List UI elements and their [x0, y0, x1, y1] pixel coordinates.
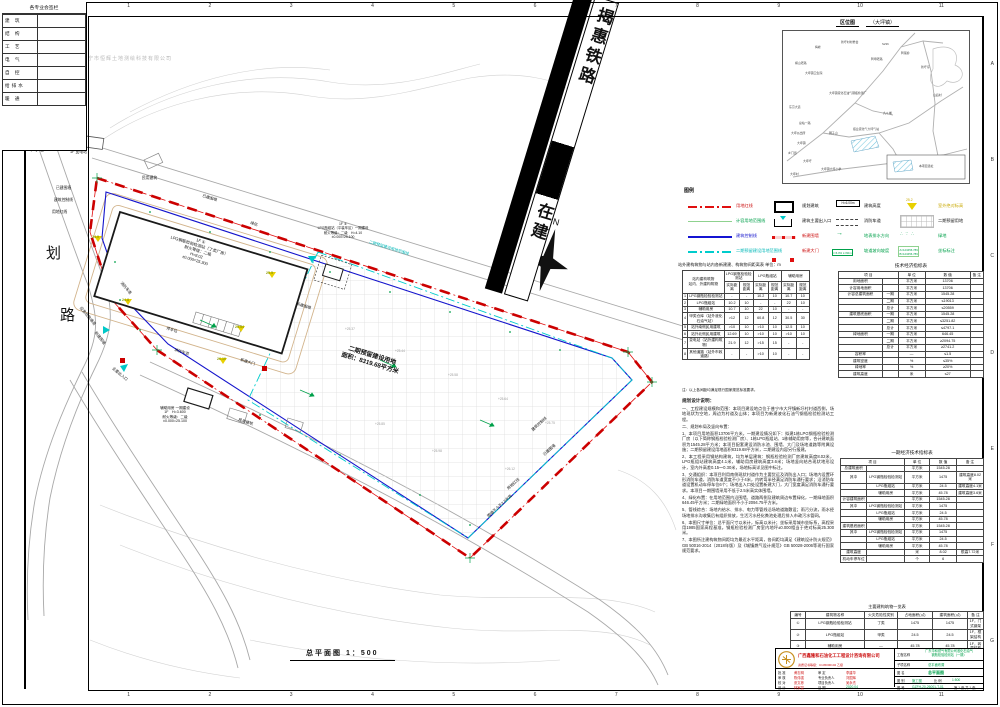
grid-ref-number: 6 [534, 3, 537, 9]
table-cell: % [898, 364, 925, 371]
new-wall-swatch [772, 236, 796, 239]
table-cell [841, 543, 867, 550]
table-cell: >10 [753, 331, 768, 338]
map-place-label: 山后村 [933, 93, 942, 97]
table-cell: 1545.28 [930, 523, 957, 530]
table-cell: 10 [768, 293, 781, 300]
table-row: 6站外北侧民用建筑12.6910>1010>1010 [683, 331, 810, 338]
table-cell [867, 556, 905, 563]
table-row: 计容用地面积平方米13706 [839, 285, 984, 292]
table-cell [970, 331, 983, 338]
grid-ref-number: 11 [939, 692, 944, 698]
table-cell: - [796, 349, 809, 360]
table-cell: 平方米 [905, 529, 930, 536]
table-row: LPG瓶组站平方米24.5建筑高度4.1米 [841, 483, 984, 490]
table-row: 辅助用房平方米45.78 [841, 516, 984, 523]
table-cell: 1475 [898, 618, 933, 629]
grid-ref-number: 9 [777, 3, 780, 9]
table-cell: 平方米 [905, 523, 930, 530]
table-cell: 个 [905, 556, 930, 563]
table-cell: - [781, 349, 796, 360]
table-cell [38, 41, 86, 54]
map-place-label: 乡门街 [788, 151, 797, 155]
table-cell: 15 [768, 337, 781, 348]
legend-title: 图例 [684, 188, 694, 194]
table-row: 总计平方米≥2741.2 [839, 344, 984, 351]
buildings-table-title: 主要建构筑物一览表 [790, 604, 984, 610]
table-cell: — [898, 351, 925, 358]
table-cell: ② [791, 629, 806, 640]
table-cell: ≤3251.82 [925, 318, 970, 325]
grid-ref-number: 4 [371, 3, 374, 9]
map-place-label: 新圩村村委会 [841, 40, 858, 44]
table-cell [867, 523, 905, 530]
map-place-label: 大坪镇大坪小学 [821, 167, 841, 171]
table-cell: - [796, 337, 809, 348]
grid-ref-number: 6 [534, 692, 537, 698]
table-cell: 建筑高度4.1米 [957, 483, 984, 490]
table-cell: 其中 [841, 529, 867, 536]
table-cell [970, 358, 983, 365]
table-cell: ≤20559 [925, 305, 970, 312]
grid-ref-number: 9 [777, 692, 780, 698]
table-cell [970, 311, 983, 318]
table-cell: 平方米 [898, 338, 925, 345]
table-row: 自 控 [3, 67, 86, 80]
distance-table-note: 注：以上各间距均满足现行国家规范标准要求。 [682, 388, 757, 392]
table-row: 二期平方米≥2094.75 [839, 338, 984, 345]
role-label: 日 期 [818, 685, 826, 690]
table-cell: LPG钢瓶检验检测站 [806, 618, 865, 629]
table-cell: 1545.28 [925, 291, 970, 298]
table-cell: ≥20% [925, 364, 970, 371]
table-cell: LPG瓶组站 [867, 483, 905, 490]
table-cell: 10 [768, 324, 781, 331]
table-cell: 二期 [882, 338, 898, 345]
table-cell: 甲类 [865, 629, 898, 640]
table-cell: 1545.28 [925, 311, 970, 318]
table-cell: 10.7 [724, 306, 740, 313]
table-cell: 其中 [841, 472, 867, 483]
table-cell: 平方米 [898, 278, 925, 285]
table-cell: 10 [768, 331, 781, 338]
legend-label: 建筑高度 [864, 203, 881, 209]
table-cell [38, 93, 86, 106]
table-cell [38, 67, 86, 80]
table-cell [867, 496, 905, 503]
table-cell: 绿地率 [839, 364, 883, 371]
map-place-label: 振业液化气大坪气站 [853, 127, 879, 131]
note-paragraph: 一、工程建设规模和范围：本项目建设地点位于普宁市大坪镇新圩村村道西侧，场地现状为… [682, 406, 834, 422]
scale-value: 1:500 [952, 678, 960, 682]
table-cell: 10 [768, 349, 781, 360]
table-row: 3辅助用房10.7102210-- [683, 306, 810, 313]
table-cell: 辅助用房 [688, 306, 725, 313]
table-cell: LPG瓶组站 [806, 629, 865, 640]
table-cell: 辅助用房 [867, 490, 905, 497]
map-place-label: 鸭母老路 [871, 57, 883, 61]
table-cell: 13706 [925, 278, 970, 285]
field-label: 子项名称 [897, 662, 910, 667]
table-cell: 结 构 [3, 28, 38, 41]
green-line-swatch [688, 221, 732, 222]
location-map-title: 区位图 [836, 20, 859, 27]
table-cell: 12 [740, 313, 754, 324]
greenery-swatch: ∴ ∵ ∴ [900, 231, 915, 236]
notes-body: 一、工程建设规模和范围：本项目建设地点位于普宁市大坪镇新圩村村道西侧，场地现状为… [682, 406, 834, 554]
table-cell: 10 [740, 324, 754, 331]
drawing-number: GZFH-20-26001-T-01 [912, 685, 944, 689]
grid-ref-band-bottom: 1234567891011 [0, 692, 1000, 704]
design-notes: 规划设计说明： 一、工程建设规模和范围：本项目建设地点位于普宁市大坪镇新圩村村道… [682, 398, 834, 555]
table-cell: ≤4797.1 [925, 325, 970, 332]
grid-ref-number: 8 [696, 692, 699, 698]
map-place-label: 狮子山 [829, 131, 838, 135]
legend-label: 建筑主要出入口 [802, 218, 831, 224]
table-cell: 10 [796, 324, 809, 331]
table-cell: 平方米 [898, 285, 925, 292]
table-cell: ≤27 [925, 371, 970, 378]
table-cell: 10 [740, 331, 754, 338]
table-row: 其中LPG钢瓶检验检测站平方米1475建筑高度8.02米 [841, 472, 984, 483]
table-cell [839, 318, 883, 325]
legend-label: 消防车道 [864, 218, 881, 224]
note-paragraph: 2、本工程采用钢结构建筑，均为单层建筑：钢瓶检验检测厂房建筑高度8.02米，LP… [682, 454, 834, 470]
legend-label: 用地红线 [736, 203, 753, 209]
table-cell [38, 54, 86, 67]
field-label: 工程名称 [897, 652, 910, 657]
table-row: 结 构 [3, 28, 86, 41]
table-cell [839, 344, 883, 351]
map-place-label: S236 [882, 42, 889, 46]
grid-ref-number: 2 [209, 692, 212, 698]
table-cell [957, 536, 984, 543]
map-place-label: 大坪圩 [803, 159, 812, 163]
phase1-table: 项 目 单 位 数 值 备 注 总建筑面积平方米1545.28其中LPG钢瓶检验… [840, 458, 984, 563]
table-cell: 建筑基底面积 [841, 523, 867, 530]
table-cell: 建筑密度 [839, 358, 883, 365]
table-row: 4甲类仓库（站外液化石油气站）>121260.81230.530 [683, 313, 810, 324]
table-cell [970, 318, 983, 325]
table-cell [957, 556, 984, 563]
table-row: 编号 建筑物名称 火灾危险性类别 占地面积(㎡) 建筑面积(㎡) 备 注 [791, 612, 984, 619]
table-cell: 建 筑 [3, 15, 38, 28]
table-cell: 24.5 [898, 629, 933, 640]
table-cell: 绿地面积 [839, 331, 883, 338]
table-cell: 24.5 [930, 483, 957, 490]
table-cell: >10 [781, 331, 796, 338]
table-cell: 24.5 [930, 536, 957, 543]
table-cell [970, 364, 983, 371]
table-cell: 其中 [841, 503, 867, 510]
table-cell [882, 351, 898, 358]
table-row: 给排水 [3, 80, 86, 93]
table-cell: 13706 [925, 285, 970, 292]
table-cell [867, 465, 905, 472]
table-cell: - [724, 293, 740, 300]
table-cell [957, 465, 984, 472]
table-cell: 45.78 [930, 543, 957, 550]
site-parcel-hatch [851, 136, 879, 152]
table-cell [970, 338, 983, 345]
legend-label: 室外绝对标高 [938, 203, 963, 209]
table-cell [38, 28, 86, 41]
table-cell [38, 15, 86, 28]
table-row: 建 筑 [3, 15, 86, 28]
table-cell: 10 [796, 331, 809, 338]
table-row: 暖 通 [3, 93, 86, 106]
planned-building-swatch [774, 201, 794, 213]
grid-ref-number: 5 [452, 3, 455, 9]
table-cell: 电 气 [3, 54, 38, 67]
table-row: 项 目 单 位 数 值 备 注 [841, 459, 984, 466]
grid-ref-number: 4 [371, 692, 374, 698]
table-cell [970, 291, 983, 298]
margin-fold-line [24, 100, 26, 689]
blue-line-swatch [688, 236, 732, 238]
table-cell: ① [791, 618, 806, 629]
drainage-swatch: → [836, 230, 843, 237]
table-cell: 45.78 [930, 490, 957, 497]
legend-label: 建筑控制线 [736, 233, 757, 239]
map-place-label: 九斗埔 [883, 111, 892, 115]
title-block: 广西鑫隆和石油化工工程设计咨询有限公司 资质证书等级：C145000102 乙级… [775, 648, 984, 689]
table-cell: 1F，框架结构 [968, 629, 984, 640]
ramp-swatch: i=6.0% L=60m [832, 249, 853, 256]
table-row: 建筑高度米8.02檐高7.72米 [841, 549, 984, 556]
legend-label: 规划建筑 [802, 203, 819, 209]
table-cell: 24.5 [930, 510, 957, 517]
table-row: 总计平方米≤20559 [839, 305, 984, 312]
table-cell: 30 [796, 313, 809, 324]
table-cell [970, 278, 983, 285]
grid-ref-number: 2 [209, 3, 212, 9]
table-cell: 米 [905, 549, 930, 556]
table-row: 容积率—≤1.5 [839, 351, 984, 358]
distance-table-title: 站外建构筑物与站内各新建建、构筑物间距离表 单位：m [678, 262, 781, 268]
table-cell [882, 278, 898, 285]
table-cell: 12 [768, 313, 781, 324]
map-place-label: 东京大道 [789, 105, 801, 109]
table-cell [38, 80, 86, 93]
table-row: LPG瓶组站平方米24.5 [841, 536, 984, 543]
note-paragraph: 7、本图所注建构筑物间距均为最近水平距离，各间距均满足《建筑设计防火规范》GB … [682, 537, 834, 553]
table-cell: - [781, 306, 796, 313]
table-cell: 工 艺 [3, 41, 38, 54]
table-cell: 1475 [930, 503, 957, 510]
tech-table-title: 技术经济指标表 [838, 263, 984, 269]
table-row: 辅助用房平方米45.78建筑高度3.6米 [841, 490, 984, 497]
map-place-label: 大坪村 [790, 172, 799, 176]
note-paragraph: 1、本项目用地面积13706平方米，一期建设情况如下：拟建1栋LPG钢瓶检验检测… [682, 431, 834, 453]
table-cell: 总计 [882, 305, 898, 312]
map-place-label: 鸭尾岭 [901, 51, 910, 55]
table-cell: LPG钢瓶检验检测站 [867, 472, 905, 483]
table-cell: 二期 [882, 318, 898, 325]
table-row: 二期平方米≤3251.82 [839, 318, 984, 325]
table-row: 工 艺 [3, 41, 86, 54]
date-value: 2020.04 [846, 685, 858, 689]
table-cell: 10.7 [781, 293, 796, 300]
notes-title: 规划设计说明： [682, 398, 834, 404]
table-cell: 总计 [882, 344, 898, 351]
note-paragraph: 4、绿化布置：在用地范围内沿围墙、道路两侧及建筑周边布置绿化，一期绿地面积646… [682, 495, 834, 506]
table-cell: 平方米 [905, 490, 930, 497]
note-paragraph: 6、本图尺寸单位：总平面尺寸以米计，标高以米计；坐标采用城市坐标系，高程采用19… [682, 520, 834, 536]
table-row: 站内建构筑物 站内、外建构筑物 LPG钢瓶检验检测站 LPG瓶组站 辅助用房 [683, 271, 810, 282]
table-row: 绿地率%≥20% [839, 364, 984, 371]
table-cell: 计容建筑面积 [841, 496, 867, 503]
table-cell: 10.2 [724, 300, 740, 307]
table-cell: 总建筑面积 [841, 465, 867, 472]
tech-table: 项 目 单 位 数 值 备 注 用地面积平方米13706计容用地面积平方米137… [838, 271, 984, 378]
subproject-name: 总平面布置 [928, 662, 944, 667]
table-cell: LPG钢瓶检验检测站 [867, 529, 905, 536]
table-row: 辅助用房平方米45.78 [841, 543, 984, 550]
table-cell: 建筑高度8.02米 [957, 472, 984, 483]
table-row: 项 目 单 位 数 值 备 注 [839, 272, 984, 279]
table-row: 其中LPG钢瓶检验检测站平方米1475 [841, 503, 984, 510]
table-cell: 12.5 [781, 324, 796, 331]
map-place-label: 大坪派出所 [791, 131, 805, 135]
map-site-legend-label: 本项目选址 [919, 164, 933, 168]
note-paragraph: 3、交通组织：本项目利用南侧现状村道作为主要货运及消防出入口；场地内设置环形消防… [682, 472, 834, 494]
note-paragraph: 5、管线综合：场地内给水、排水、电力等管线沿场地道路敷设；雨污分流，雨水经场地排… [682, 507, 834, 518]
table-cell: 丁类 [865, 618, 898, 629]
table-cell: 辅助用房 [867, 516, 905, 523]
table-cell: 10 [740, 300, 754, 307]
table-cell: 给排水 [3, 80, 38, 93]
table-cell: 21.9 [724, 337, 740, 348]
table-cell: 平方米 [905, 503, 930, 510]
phase2-grid-swatch [900, 215, 934, 228]
table-cell: 平方米 [898, 331, 925, 338]
legend-label: 坐标标注 [938, 248, 955, 254]
table-cell: 机动车停车位 [841, 556, 867, 563]
table-cell [970, 371, 983, 378]
table-cell: 平方米 [905, 472, 930, 483]
cyan-line-swatch [688, 251, 732, 253]
table-row: 建筑基底面积一期平方米1545.28 [839, 311, 984, 318]
table-cell: 平方米 [898, 325, 925, 332]
grid-ref-band-right: ABCDEFG [982, 16, 999, 689]
table-cell: 1475 [933, 618, 968, 629]
table-cell: >12 [724, 313, 740, 324]
table-cell [957, 529, 984, 536]
table-cell: >10 [753, 324, 768, 331]
grid-ref-number: 10 [857, 692, 863, 698]
table-row: 绿地面积一期平方米646.45 [839, 331, 984, 338]
table-cell: 30.5 [781, 313, 796, 324]
table-cell: 1545.28 [930, 496, 957, 503]
table-cell [970, 298, 983, 305]
grid-ref-letter: G [990, 638, 994, 644]
table-row: 8其他道路（站外市政道路）-->1010-- [683, 349, 810, 360]
table-cell [882, 364, 898, 371]
entrance-swatch [774, 219, 792, 227]
table-cell: 平方米 [905, 496, 930, 503]
legend-label: 坡道坡向坡度 [864, 248, 889, 254]
table-cell: 建筑高度 [839, 371, 883, 378]
signature-panel-title: 各专业会签栏 [2, 2, 86, 14]
table-row: 其中LPG钢瓶检验检测站平方米1475 [841, 529, 984, 536]
grid-ref-number: 10 [857, 3, 863, 9]
table-cell: 平方米 [898, 311, 925, 318]
table-row: 电 气 [3, 54, 86, 67]
location-map: 梅峰新圩村村委会横山老路大坪镇卫生院鸭母老路鸭尾岭新圩仔山后村S236大坪镇液化… [782, 30, 970, 184]
location-map-subtitle: （大坪镇） [866, 20, 899, 27]
table-cell [839, 338, 883, 345]
grid-ref-number: 1 [127, 692, 130, 698]
table-cell: 646.45 [925, 331, 970, 338]
table-cell [957, 510, 984, 517]
table-cell: 60.8 [753, 313, 768, 324]
table-cell: 平方米 [905, 510, 930, 517]
table-cell: 一期 [882, 291, 898, 298]
table-cell: 一期 [882, 311, 898, 318]
table-cell: 容积率 [839, 351, 883, 358]
table-cell [841, 536, 867, 543]
table-row: 建筑高度米≤27 [839, 371, 984, 378]
table-cell [839, 325, 883, 332]
table-row: 机动车停车位个6 [841, 556, 984, 563]
table-cell: 1545.28 [930, 465, 957, 472]
project-name: 广东华和燃气有限公司液化石油气 钢瓶检验检测站（一期） [916, 650, 982, 658]
table-cell [882, 285, 898, 292]
map-place-label: 大坪镇卫生院 [805, 71, 822, 75]
table-cell [957, 503, 984, 510]
table-cell: 建筑高度3.6米 [957, 490, 984, 497]
table-cell [841, 490, 867, 497]
table-cell: - [724, 349, 740, 360]
table-cell: 暖 通 [3, 93, 38, 106]
grid-ref-number: 1 [127, 3, 130, 9]
table-row: 7变电站（站外建构筑物）21.912>1515-- [683, 337, 810, 348]
table-cell: 10 [796, 300, 809, 307]
table-cell [867, 549, 905, 556]
table-cell: 10 [796, 293, 809, 300]
table-row: LPG瓶组站平方米24.5 [841, 510, 984, 517]
table-cell [970, 351, 983, 358]
grid-ref-number: 11 [939, 3, 944, 9]
table-cell: - [753, 300, 768, 307]
grid-ref-band-top: 1234567891011 [0, 3, 1000, 15]
table-cell: 甲类仓库（站外液化石油气站） [688, 313, 725, 324]
table-cell: ≤35% [925, 358, 970, 365]
company-name: 广西鑫隆和石油化工工程设计咨询有限公司 [798, 653, 892, 658]
map-place-label: 大坪镇液化石油气钢瓶检测厂 [829, 91, 867, 95]
grid-ref-letter: D [990, 350, 994, 356]
table-cell: 24.5 [933, 629, 968, 640]
sheet-count: 第 1 张 共 1 张 [954, 685, 975, 690]
legend-label: 新建大门 [802, 248, 819, 254]
table-cell: % [898, 358, 925, 365]
map-place-label: 总站一路 [799, 121, 811, 125]
table-cell: 平方米 [898, 344, 925, 351]
legend-label: 地表排水方向 [864, 233, 889, 239]
table-cell [839, 305, 883, 312]
table-cell: 平方米 [905, 483, 930, 490]
map-place-label: 横山老路 [795, 61, 807, 65]
distance-table: 站内建构筑物 站内、外建构筑物 LPG钢瓶检验检测站 LPG瓶组站 辅助用房 实… [682, 270, 810, 360]
table-cell: 22 [753, 306, 768, 313]
grid-ref-letter: B [991, 157, 994, 163]
legend-label: 绿地 [938, 233, 946, 239]
plan-scale-label: 总平面图 1：500 [290, 648, 395, 661]
table-cell: ≥2094.75 [925, 338, 970, 345]
table-cell: ≤1.5 [925, 351, 970, 358]
table-cell: 平方米 [905, 516, 930, 523]
